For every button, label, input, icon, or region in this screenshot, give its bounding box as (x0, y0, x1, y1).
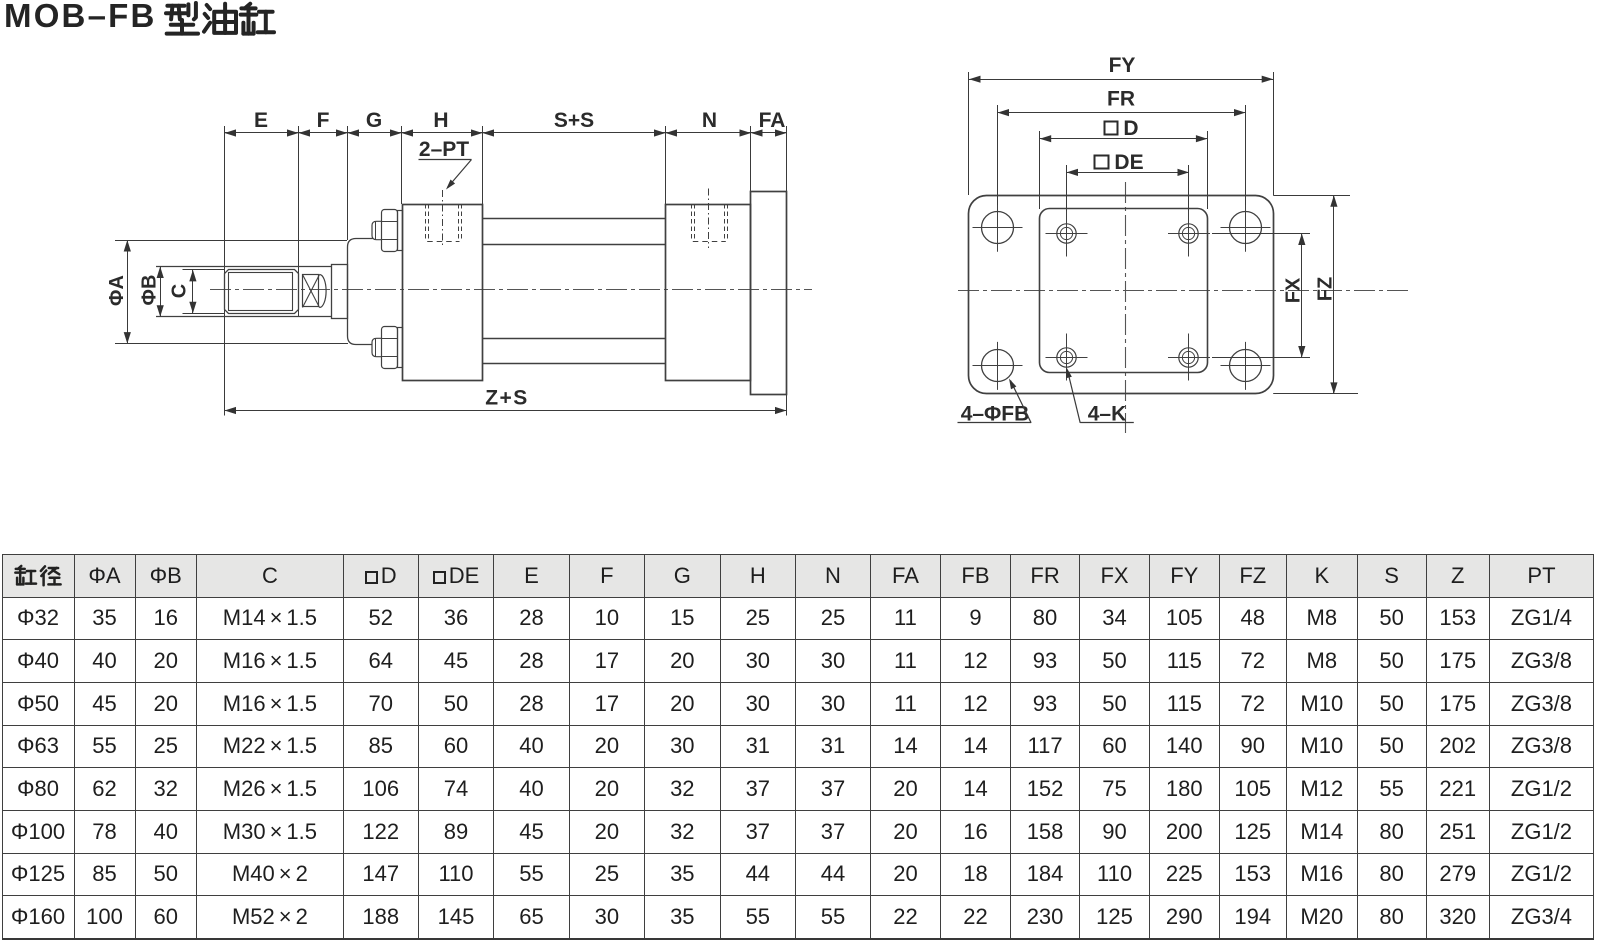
svg-text:FA: FA (759, 109, 786, 132)
svg-text:G: G (366, 109, 382, 132)
svg-text:FR: FR (1107, 88, 1135, 111)
svg-text:2–PT: 2–PT (419, 138, 469, 161)
svg-text:DE: DE (1114, 151, 1143, 174)
svg-text:ΦA: ΦA (106, 275, 128, 306)
svg-text:F: F (317, 109, 330, 132)
svg-text:FX: FX (1283, 277, 1305, 303)
svg-text:N: N (702, 109, 717, 132)
svg-text:FZ: FZ (1315, 277, 1337, 301)
svg-text:Z+S: Z+S (485, 387, 529, 410)
svg-text:FY: FY (1109, 54, 1136, 77)
svg-text:H: H (433, 109, 448, 132)
svg-text:S+S: S+S (554, 109, 594, 132)
svg-text:ΦB: ΦB (139, 275, 161, 306)
svg-text:E: E (254, 109, 268, 132)
svg-text:C: C (169, 284, 191, 298)
svg-text:D: D (1123, 117, 1138, 140)
